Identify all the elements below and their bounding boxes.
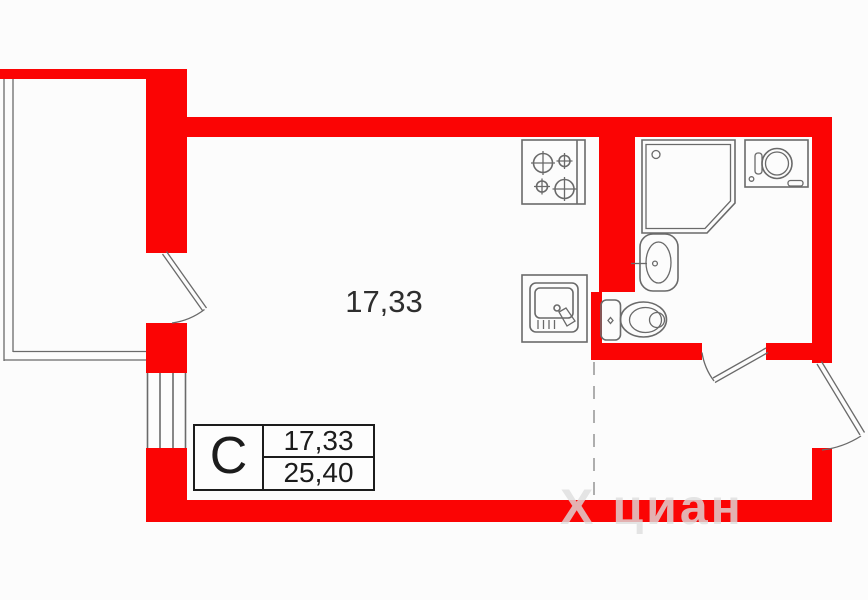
- wall-segment: [591, 343, 702, 360]
- floor-plan: 17,33 С 17,33 25,40 Х циан: [0, 0, 868, 600]
- entrance-door-swing: [817, 362, 865, 451]
- wall-segment: [599, 137, 635, 292]
- stove-icon: [522, 140, 585, 204]
- cian-logo-glyph: Х: [560, 478, 596, 536]
- apartment-type-letter: С: [195, 426, 264, 489]
- wall-segment: [146, 323, 187, 373]
- balcony-door-swing: [163, 252, 207, 324]
- wall-segment: [812, 117, 832, 363]
- wall-segment: [0, 69, 187, 79]
- wall-segment: [146, 79, 187, 253]
- cian-watermark: Х циан: [560, 478, 744, 536]
- bathroom-door-swing: [702, 348, 768, 383]
- living-area-value: 17,33: [264, 426, 373, 458]
- shower-icon: [642, 140, 735, 233]
- balcony-outline: [4, 79, 146, 361]
- room-area-label: 17,33: [328, 284, 440, 320]
- wall-segment: [187, 117, 832, 137]
- total-area-value: 25,40: [264, 458, 373, 490]
- area-table: С 17,33 25,40: [193, 424, 375, 491]
- balcony-window: [148, 373, 186, 448]
- kitchen-sink-icon: [522, 275, 587, 342]
- washbasin-icon: [631, 234, 678, 291]
- toilet-icon: [601, 300, 667, 340]
- wall-segment: [766, 343, 812, 360]
- cian-brand-text: циан: [612, 478, 743, 536]
- washing-machine-icon: [745, 140, 808, 187]
